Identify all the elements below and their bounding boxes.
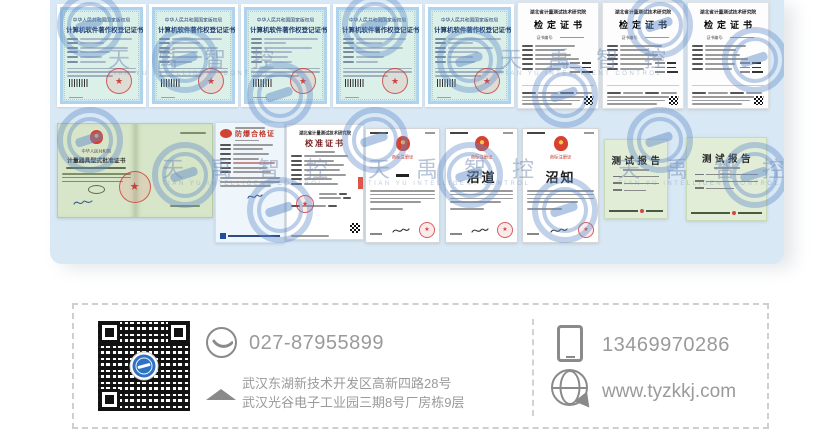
barcode [161, 79, 181, 87]
national-emblem-icon [396, 136, 410, 151]
qr-code [350, 223, 360, 233]
qr-code [584, 96, 593, 105]
footer-divider [532, 319, 534, 416]
verification-certificate: 湖北省计量测试技术研究院 检定证书 证书编号: [517, 2, 599, 109]
red-seal [198, 68, 224, 94]
phone-number: 027-87955899 [249, 332, 384, 355]
cursor-icon [574, 392, 595, 413]
home-icon [206, 372, 236, 399]
website-link[interactable]: www.tyzkkj.com [602, 381, 736, 403]
mobile-phone-icon [557, 325, 583, 362]
national-emblem-icon [554, 136, 568, 151]
cert-title: 防爆合格证 [235, 129, 275, 139]
red-seal [578, 222, 594, 238]
cert-title-line2: 计算机软件著作权登记证书 [434, 25, 505, 34]
cert-title-line2: 计算机软件著作权登记证书 [66, 25, 137, 34]
certificates-panel: 中华人民共和国国家版权局 计算机软件著作权登记证书 中华人民共和国国家版权局 计… [50, 0, 784, 264]
software-copyright-certificate: 中华人民共和国国家版权局 计算机软件著作权登记证书 [149, 4, 238, 107]
barcode [345, 79, 365, 87]
cert-title: 检定证书 [688, 18, 768, 31]
trademark-registration-doc: 商标注册证 沼道 [445, 128, 518, 243]
globe-icon [551, 369, 588, 406]
agency-seal-icon [220, 129, 232, 138]
cert-no-label: 证书编号: [707, 35, 724, 41]
cert-title-line2: 计算机软件著作权登记证书 [158, 25, 229, 34]
qr-eye-icon [168, 322, 189, 343]
trademark-text: 沼道 [446, 167, 517, 182]
software-copyright-certificate: 中华人民共和国国家版权局 计算机软件著作权登记证书 [57, 4, 146, 107]
red-seal [497, 222, 513, 238]
cert-title-line1: 中华人民共和国国家版权局 [439, 16, 501, 23]
national-emblem-icon [475, 136, 489, 151]
report-title: 测试报告 [687, 151, 766, 165]
qr-eye-icon [99, 322, 120, 343]
verification-certificate: 湖北省计量测试技术研究院 检定证书 证书编号: [687, 2, 769, 109]
signers [570, 60, 593, 73]
signature [391, 226, 411, 235]
cert-title: 计量器具型式批准证书 [62, 156, 131, 165]
cert-no-label: 证书编号: [622, 35, 639, 41]
cert-title: 检定证书 [603, 18, 683, 31]
booklet-right-page [136, 124, 213, 217]
address-line-1: 武汉东湖新技术开发区高新四路28号 [242, 374, 464, 393]
trademark-registration-doc: 商标注册证 沼知 [522, 128, 599, 243]
doc-label: 商标注册证 [376, 153, 429, 159]
certificates-row-1: 中华人民共和国国家版权局 计算机软件著作权登记证书 中华人民共和国国家版权局 计… [57, 4, 769, 109]
cpa-mark-icon [88, 185, 105, 194]
trademark-text: 沼知 [523, 167, 598, 182]
address: 武汉东湖新技术开发区高新四路28号 武汉光谷电子工业园三期8号厂房栋9层 [242, 374, 464, 412]
red-label [358, 177, 363, 189]
barcode [437, 79, 457, 87]
calibration-certificate: 湖北省计量测试技术研究院 校准证书 [286, 124, 364, 240]
qr-code [669, 96, 678, 105]
phone-icon [206, 327, 237, 358]
test-report-cover: 测试报告 [686, 137, 767, 221]
software-copyright-certificate: 中华人民共和国国家版权局 计算机软件著作权登记证书 [425, 4, 514, 107]
red-seal [382, 68, 408, 94]
software-copyright-certificate: 中华人民共和国国家版权局 计算机软件著作权登记证书 [241, 4, 330, 107]
signers [655, 60, 678, 73]
trademark-text [366, 167, 439, 182]
agency-logo-icon [220, 233, 226, 239]
national-emblem-icon [90, 130, 103, 144]
doc-label: 商标注册证 [534, 153, 588, 159]
company-name-line [66, 167, 126, 169]
red-seal [296, 195, 314, 213]
barcode [69, 79, 89, 87]
cert-title-line1: 中华人民共和国国家版权局 [347, 16, 409, 23]
cert-title-line2: 计算机软件著作权登记证书 [250, 25, 321, 34]
mobile-number: 13469970286 [602, 334, 730, 357]
contact-footer: 027-87955899 武汉东湖新技术开发区高新四路28号 武汉光谷电子工业园… [72, 303, 769, 429]
cert-title-line1: 中华人民共和国国家版权局 [163, 16, 225, 23]
issuing-org: 湖北省计量测试技术研究院 [527, 8, 589, 15]
red-seal [474, 68, 500, 94]
signature [470, 226, 490, 235]
red-seal [119, 171, 151, 203]
cert-no-label: 证书编号: [537, 35, 554, 41]
cert-title: 校准证书 [287, 138, 363, 149]
country-label: 中华人民共和国 [69, 147, 123, 153]
signature [72, 198, 94, 207]
issuing-org: 湖北省计量测试技术研究院 [612, 8, 674, 15]
verification-certificate: 湖北省计量测试技术研究院 检定证书 证书编号: [602, 2, 684, 109]
cert-title-line2: 计算机软件著作权登记证书 [342, 25, 413, 34]
red-seal [732, 211, 736, 215]
report-title: 测试报告 [605, 153, 667, 167]
red-seal [640, 209, 644, 213]
cert-title: 检定证书 [518, 18, 598, 31]
cert-title-line1: 中华人民共和国国家版权局 [71, 16, 133, 23]
company-logo-icon [131, 353, 158, 380]
signature [246, 192, 264, 201]
trademark-registration-doc: 商标注册证 [365, 128, 440, 243]
type-approval-certificate-booklet: 中华人民共和国 计量器具型式批准证书 [57, 123, 213, 218]
barcode [253, 79, 273, 87]
red-seal [419, 222, 435, 238]
issuing-org: 湖北省计量测试技术研究院 [298, 129, 353, 135]
qr-eye-icon [99, 389, 120, 410]
test-report-cover: 测试报告 [604, 139, 668, 219]
booklet-left-page: 中华人民共和国 计量器具型式批准证书 [58, 124, 136, 217]
red-seal [106, 68, 132, 94]
issuing-org: 湖北省计量测试技术研究院 [697, 8, 759, 15]
qr-code [98, 321, 190, 411]
explosion-proof-certificate: 防爆合格证 [215, 122, 285, 243]
address-line-2: 武汉光谷电子工业园三期8号厂房栋9层 [242, 393, 464, 412]
red-seal [290, 68, 316, 94]
doc-label: 商标注册证 [456, 153, 507, 159]
signature [549, 226, 569, 235]
qr-code [754, 96, 763, 105]
cert-title-line1: 中华人民共和国国家版权局 [255, 16, 317, 23]
signers [740, 60, 763, 73]
software-copyright-certificate: 中华人民共和国国家版权局 计算机软件著作权登记证书 [333, 4, 422, 107]
